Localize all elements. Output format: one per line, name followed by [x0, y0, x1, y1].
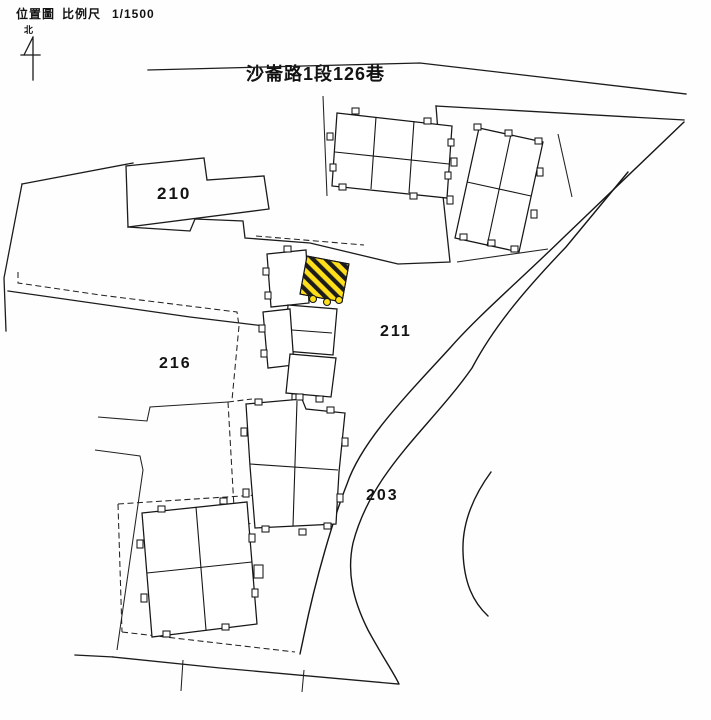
step-line-upper — [98, 402, 228, 421]
lot-label-210: 210 — [157, 184, 191, 203]
street-top-edge — [148, 63, 686, 94]
west-lower-boundary — [95, 450, 143, 650]
road-inner-edge — [351, 172, 628, 684]
building-cluster-right — [447, 124, 543, 252]
building-unit — [286, 354, 336, 397]
map-header: 位置圖 比例尺 1/1500 — [16, 6, 155, 21]
bottom-ticks — [181, 660, 304, 692]
building-outline — [142, 502, 257, 637]
lot-label-203: 203 — [366, 487, 399, 504]
bottom-boundary — [113, 657, 398, 684]
subject-bump — [336, 297, 343, 304]
north-arrow: 北 — [21, 24, 40, 80]
building-cluster-bottom-left — [137, 498, 263, 637]
top-parcel-left-edge — [323, 96, 327, 196]
subject-building-hatch — [300, 256, 349, 302]
street-bottom-edge — [436, 106, 684, 120]
scale-label: 比例尺 — [62, 6, 101, 21]
scale-value: 1/1500 — [112, 7, 155, 21]
building-cluster-top — [327, 108, 454, 199]
west-boundary — [4, 184, 22, 331]
north-arrow-icon — [21, 37, 40, 80]
north-label: 北 — [24, 24, 33, 35]
building-outline — [332, 113, 452, 198]
parcel-216-dashed-right — [232, 326, 239, 400]
subject-bump — [310, 296, 317, 303]
location-map: 位置圖 比例尺 1/1500 北 沙崙路1段126巷 210 211 216 2… — [0, 0, 711, 720]
parcel-210-outline — [126, 158, 269, 227]
lot-label-211: 211 — [380, 323, 412, 340]
lot-label-216: 216 — [159, 355, 192, 372]
northwest-boundary — [22, 163, 133, 184]
map-title: 位置圖 — [16, 6, 55, 21]
building-cluster-center — [259, 246, 349, 402]
bottom-west-spur — [75, 655, 113, 657]
culdesac-arc — [463, 472, 491, 616]
subject-bump — [324, 299, 331, 306]
location-map-page: 位置圖 比例尺 1/1500 北 沙崙路1段126巷 210 211 216 2… — [0, 0, 711, 720]
building-cluster-lower-middle — [241, 394, 348, 535]
parcel-216-dashed-top — [18, 272, 239, 326]
